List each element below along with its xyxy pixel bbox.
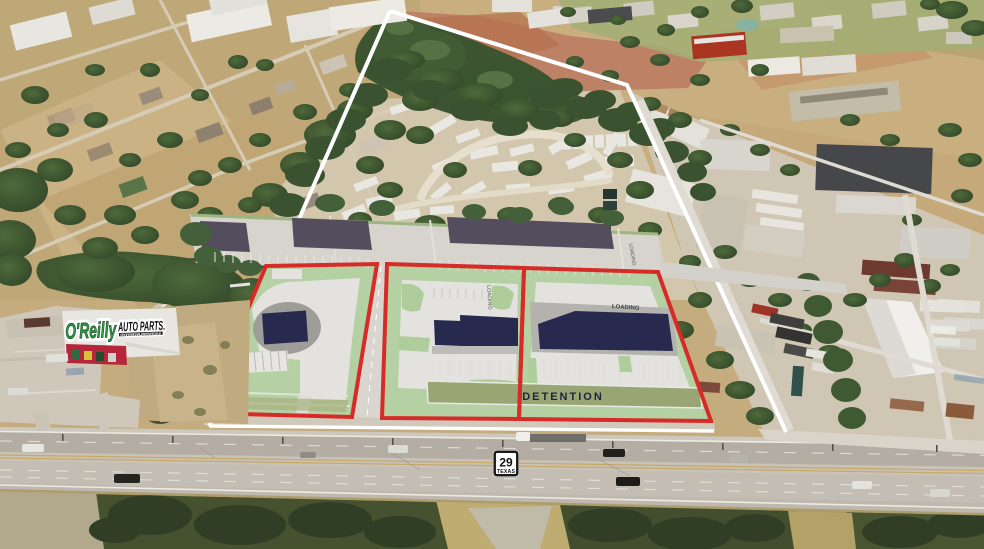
svg-text:TEXAS: TEXAS: [497, 469, 516, 475]
svg-text:DETENTION: DETENTION: [522, 391, 604, 403]
svg-text:O'Reilly: O'Reilly: [65, 317, 118, 344]
svg-text:29: 29: [499, 456, 513, 470]
